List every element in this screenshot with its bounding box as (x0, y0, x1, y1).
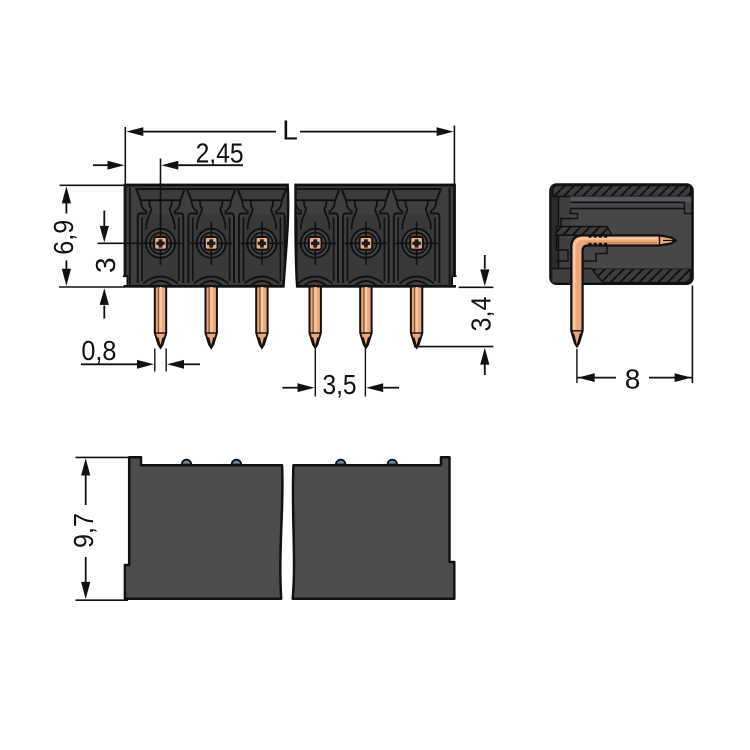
svg-text:0,8: 0,8 (81, 335, 116, 366)
svg-text:8: 8 (625, 364, 641, 395)
svg-text:3,4: 3,4 (466, 297, 497, 332)
svg-text:L: L (282, 115, 298, 146)
svg-text:3,5: 3,5 (323, 369, 357, 400)
svg-text:2,45: 2,45 (196, 138, 244, 169)
svg-text:6,9: 6,9 (48, 220, 79, 255)
svg-text:9,7: 9,7 (68, 513, 99, 548)
svg-text:3: 3 (90, 257, 121, 273)
